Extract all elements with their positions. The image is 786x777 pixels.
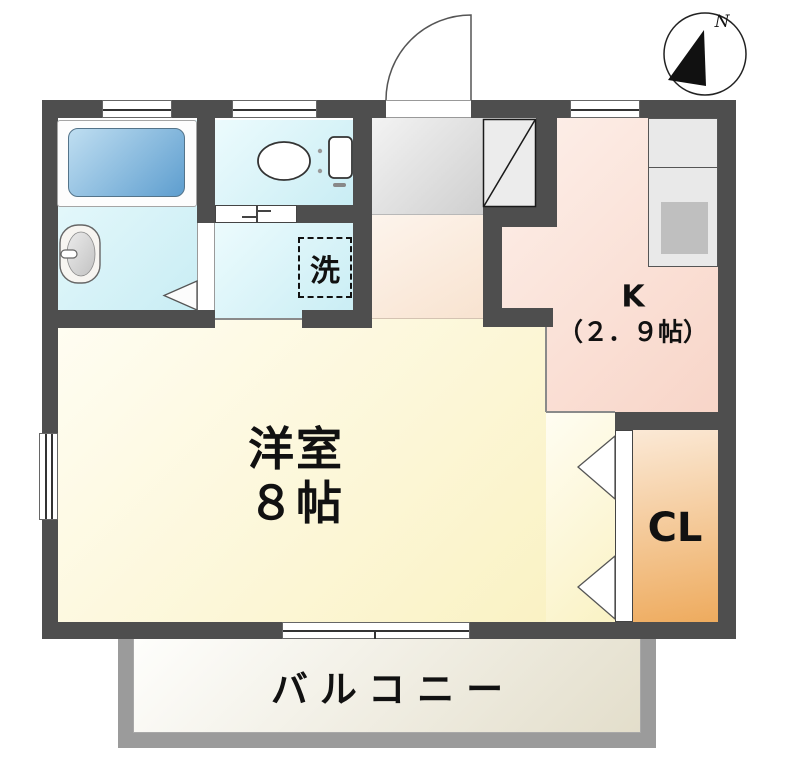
kitchen-size: （２．９帖） [558,316,708,347]
floor-plan: 洗 [0,0,786,777]
room-label-balcony: バルコニー [271,659,515,713]
toilet-icon [258,137,352,187]
room-label-kitchen: K （２．９帖） [558,279,708,348]
bathroom-door-swing-icon [164,281,197,310]
washbasin-icon [60,225,100,283]
compass-label: N [715,12,730,32]
closet-bifold-door-icon [578,436,615,619]
room-label-western-room: 洋室 ８帖 [248,423,344,531]
entrance-door-icon [386,15,471,100]
room-label-closet: CL [648,505,703,551]
western-room-size: ８帖 [248,477,344,531]
kitchen-name: K [558,279,708,317]
shoe-cabinet-icon [484,120,536,207]
compass-icon [664,13,746,95]
western-room-name: 洋室 [248,423,344,477]
